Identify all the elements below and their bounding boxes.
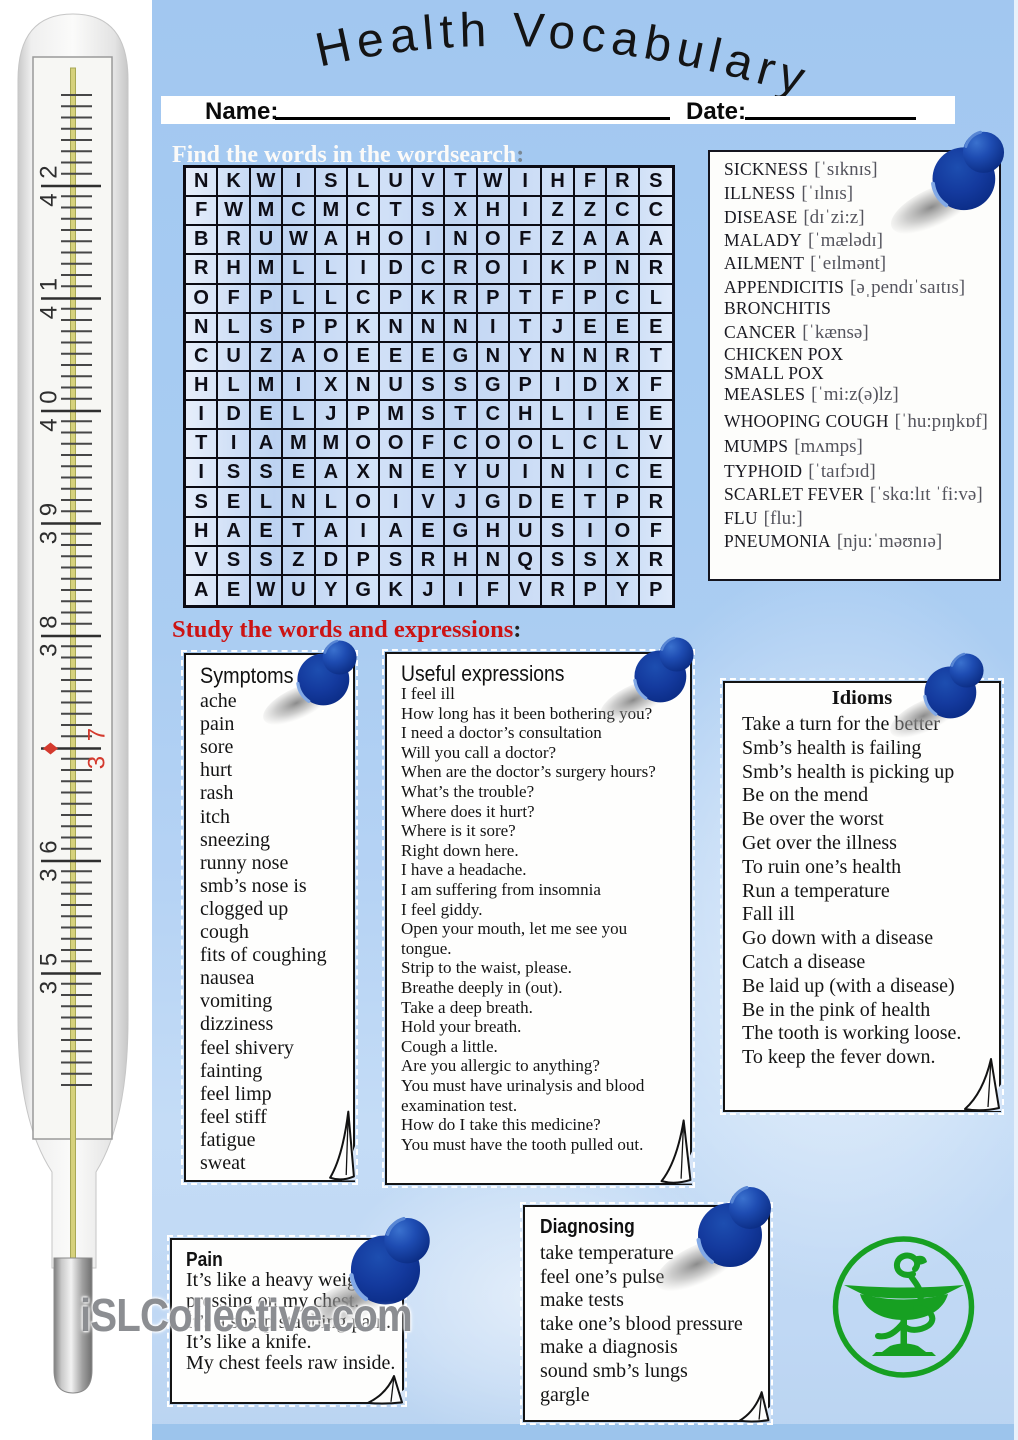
svg-text:4: 4 (36, 418, 63, 431)
svg-text:7: 7 (84, 728, 111, 741)
svg-text:8: 8 (36, 615, 63, 628)
svg-text:3: 3 (84, 756, 111, 769)
svg-text:3: 3 (36, 868, 63, 881)
svg-text:4: 4 (36, 306, 63, 319)
svg-text:4: 4 (36, 193, 63, 206)
svg-text:Health Vocabulary: Health Vocabulary (311, 4, 817, 107)
svg-text:6: 6 (36, 840, 63, 853)
svg-text:9: 9 (36, 503, 63, 516)
svg-text:1: 1 (36, 278, 63, 291)
svg-text:3: 3 (36, 531, 63, 544)
svg-text:3: 3 (36, 643, 63, 656)
svg-text:0: 0 (36, 390, 63, 403)
svg-text:2: 2 (36, 165, 63, 178)
svg-text:5: 5 (36, 953, 63, 966)
svg-text:3: 3 (36, 981, 63, 994)
